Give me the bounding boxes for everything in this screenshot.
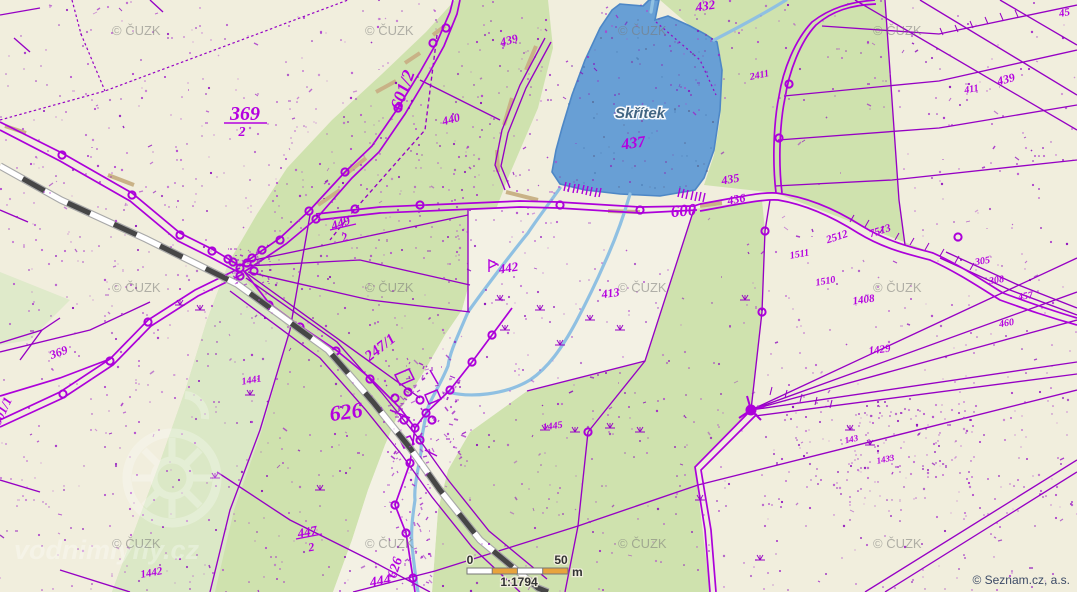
svg-text:0: 0	[467, 553, 474, 567]
svg-text:m: m	[572, 565, 583, 579]
svg-text:600: 600	[670, 200, 698, 221]
svg-text:© ČUZK: © ČUZK	[873, 536, 922, 551]
svg-text:© ČUZK: © ČUZK	[873, 23, 922, 38]
svg-text:vodnimlyny.cz: vodnimlyny.cz	[14, 535, 200, 565]
svg-text:© Seznam.cz, a.s.: © Seznam.cz, a.s.	[972, 573, 1070, 587]
svg-text:© ČUZK: © ČUZK	[365, 280, 414, 295]
svg-text:© ČUZK: © ČUZK	[112, 280, 161, 295]
svg-text:1:1794: 1:1794	[500, 575, 538, 589]
svg-text:© ČUZK: © ČUZK	[618, 280, 667, 295]
svg-text:50: 50	[554, 553, 568, 567]
svg-text:© ČUZK: © ČUZK	[618, 536, 667, 551]
svg-text:626: 626	[328, 397, 364, 426]
svg-text:© ČUZK: © ČUZK	[112, 23, 161, 38]
svg-text:© ČUZK: © ČUZK	[112, 536, 161, 551]
svg-text:2: 2	[238, 125, 246, 140]
svg-text:© ČUZK: © ČUZK	[873, 280, 922, 295]
svg-text:437: 437	[619, 133, 647, 153]
svg-text:© ČUZK: © ČUZK	[618, 23, 667, 38]
svg-text:© ČUZK: © ČUZK	[365, 536, 414, 551]
svg-text:369: 369	[229, 103, 260, 125]
svg-text:442: 442	[497, 259, 520, 277]
svg-text:© ČUZK: © ČUZK	[365, 23, 414, 38]
svg-text:Skřítek: Skřítek	[615, 105, 666, 122]
